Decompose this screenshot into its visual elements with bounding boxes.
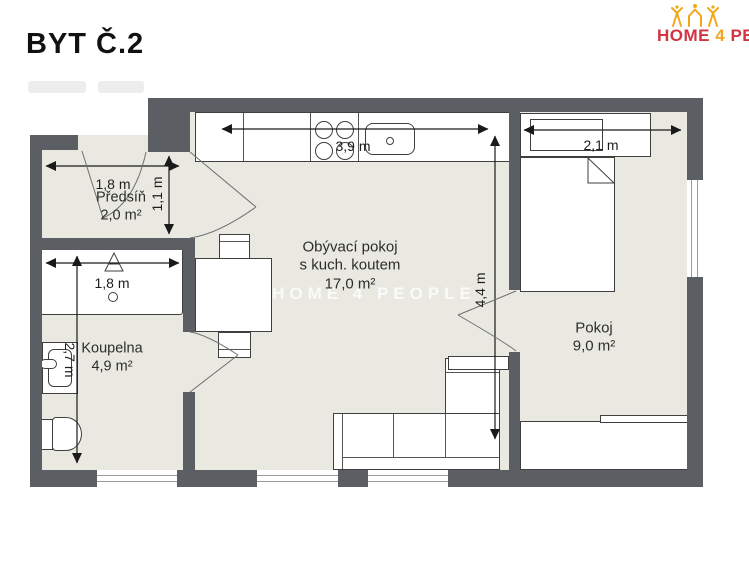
blanket-fold [588, 158, 614, 183]
room-label-living: Obývací pokoj s kuch. koutem 17,0 m² [300, 239, 401, 294]
hall-living-door-swing-arc [190, 207, 256, 238]
bath-door-leaf [190, 355, 238, 392]
room-area: 2,0 m² [96, 207, 146, 225]
room-label-hall: Předsíň 2,0 m² [96, 189, 146, 224]
room-area: 17,0 m² [300, 275, 401, 293]
room-name: s kuch. koutem [300, 257, 401, 275]
room-name: Obývací pokoj [300, 239, 401, 257]
dimension-label-hall-width: 1,8 m [95, 176, 130, 192]
dimension-label-kitchen-width: 3,9 m [335, 138, 370, 154]
room-area: 9,0 m² [573, 338, 616, 356]
hall-living-door-leaf [190, 152, 256, 207]
dimension-label-living-height: 4,4 m [472, 272, 488, 307]
room-name: Koupelna [81, 340, 142, 358]
room-label-bedroom: Pokoj 9,0 m² [573, 320, 616, 357]
room-area: 4,9 m² [81, 358, 142, 376]
bath-door-swing-arc [190, 332, 238, 355]
floor-plan-page: BYT Č.2 HOME 4 PEOP [0, 0, 749, 562]
dimension-label-bedroom-width: 2,1 m [583, 137, 618, 153]
dimension-label-bath-width: 1,8 m [94, 275, 129, 291]
dimension-label-hall-height: 1,1 m [149, 176, 165, 211]
dimension-label-bath-height: 2,7 m [62, 342, 78, 377]
room-name: Pokoj [573, 320, 616, 338]
bedroom-door-swing-arc [458, 315, 516, 351]
shower-symbol [105, 253, 123, 271]
room-label-bathroom: Koupelna 4,9 m² [81, 340, 142, 375]
